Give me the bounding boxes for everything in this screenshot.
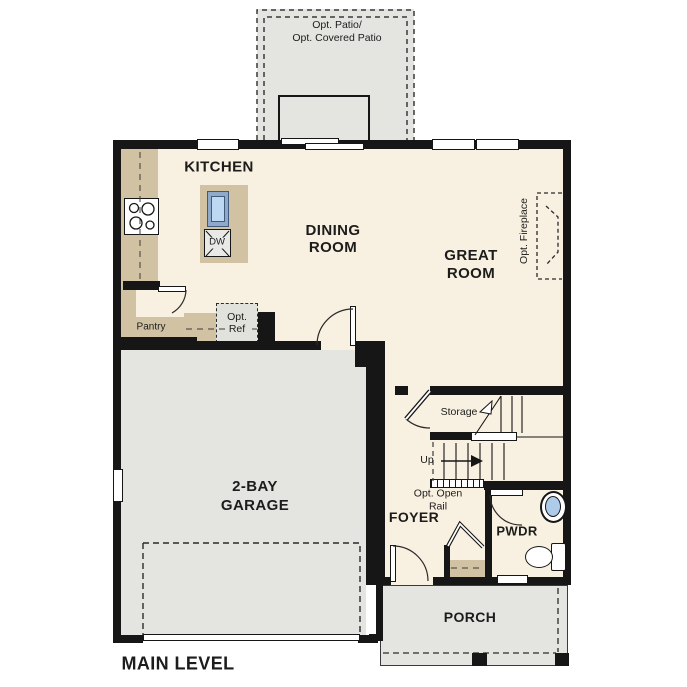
garage-apron-dashed xyxy=(143,543,360,635)
dishwasher-label: DW xyxy=(208,238,226,249)
dining-label: DINING ROOM xyxy=(306,222,361,256)
opt-ref-label: Opt. Ref xyxy=(226,311,248,335)
up-label: Up xyxy=(420,454,433,466)
open-rail-label: Opt. Open Rail xyxy=(414,488,462,513)
porch-label: PORCH xyxy=(444,609,497,625)
up-arrow-icon xyxy=(441,455,483,467)
plan-linework xyxy=(0,0,687,687)
fireplace-dashed-outline xyxy=(537,193,562,279)
cooktop-burners xyxy=(130,203,155,229)
porch-posts xyxy=(472,653,569,666)
kitchen-label: KITCHEN xyxy=(184,158,253,175)
pwdr-label: PWDR xyxy=(496,525,537,540)
patio-label: Opt. Patio/ Opt. Covered Patio xyxy=(292,19,381,45)
stair-break-symbol xyxy=(480,401,492,414)
storage-label: Storage xyxy=(441,406,478,418)
main-level-title: MAIN LEVEL xyxy=(121,654,234,675)
pantry-label: Pantry xyxy=(137,321,166,333)
fireplace-label: Opt. Fireplace xyxy=(518,198,530,264)
garage-label: 2-BAY GARAGE xyxy=(221,477,289,515)
great-room-label: GREAT ROOM xyxy=(444,247,497,283)
door-arcs xyxy=(172,290,522,581)
closet-bifold-doors xyxy=(448,524,483,547)
storage-door-leaf xyxy=(406,391,430,419)
floor-plan: KITCHEN DINING ROOM GREAT ROOM 2-BAY GAR… xyxy=(0,0,687,687)
